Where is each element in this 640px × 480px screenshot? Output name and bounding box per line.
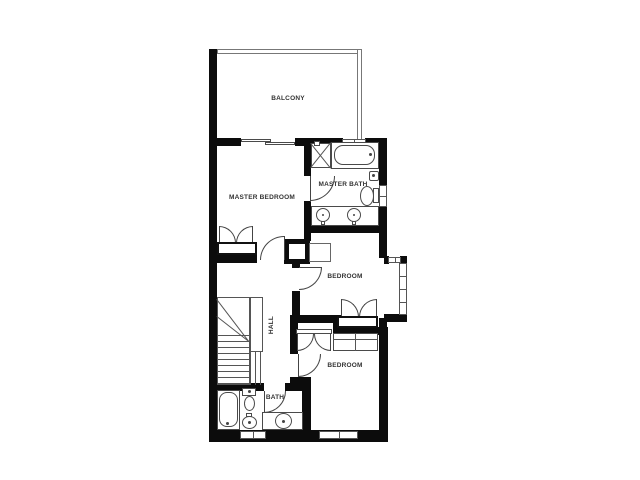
wall-masterbath-west-b bbox=[304, 201, 311, 241]
wall-east-bedroom-lower bbox=[379, 328, 388, 438]
master-bath-label: MASTER BATH bbox=[303, 181, 383, 188]
vanity-sink-right-drain bbox=[353, 214, 355, 216]
bedroom-upper-label: BEDROOM bbox=[305, 273, 385, 280]
bath-label: BATH bbox=[255, 394, 295, 401]
vanity-sink-left-faucet bbox=[321, 221, 325, 225]
upper-closet-swing-right bbox=[359, 299, 377, 317]
window-bath-south bbox=[240, 431, 266, 439]
upper-closet-box bbox=[337, 316, 378, 328]
vanity-bath-drain bbox=[282, 420, 285, 423]
master-bedroom-label: MASTER BEDROOM bbox=[212, 194, 312, 201]
bidet-drain bbox=[248, 421, 251, 424]
wall-bath-north-right bbox=[285, 383, 302, 391]
bedroom-lower-label: BEDROOM bbox=[305, 362, 385, 369]
wall-masterbath-south bbox=[304, 225, 387, 233]
window-masterbath-east bbox=[379, 185, 387, 207]
wall-hall-east-b bbox=[292, 291, 300, 315]
masterbath-door-swing bbox=[310, 176, 335, 201]
wall-masterbed-south bbox=[209, 255, 257, 263]
toilet-bath-flush-button bbox=[248, 390, 251, 393]
balcony-label: BALCONY bbox=[244, 95, 332, 102]
bathtub-vertical-faucet bbox=[226, 422, 229, 425]
toilet-paper-holder-dot bbox=[372, 174, 375, 177]
stairs-treads bbox=[218, 335, 249, 385]
masterbed-door-swing bbox=[260, 236, 284, 260]
master-closet-swing-left bbox=[219, 226, 236, 243]
shower-mixer-icon bbox=[314, 141, 320, 146]
master-closet-swing-right bbox=[236, 226, 253, 243]
bay-bottom-bar bbox=[384, 314, 407, 322]
toilet-masterbath-tank bbox=[373, 188, 379, 203]
floor-plan: BALCONY MASTER BEDROOM MASTER BATH BEDRO… bbox=[0, 0, 640, 480]
balcony-rail-right bbox=[357, 49, 362, 142]
window-bedroom-south bbox=[319, 431, 358, 439]
wardrobe-divider bbox=[355, 333, 356, 351]
wall-east-top bbox=[379, 138, 387, 186]
vanity-sink-left-drain bbox=[322, 214, 324, 216]
lower-closet-swing-right bbox=[314, 334, 331, 351]
wall-north-left bbox=[217, 138, 241, 146]
window-bay-east bbox=[399, 263, 407, 315]
wall-south-outer bbox=[209, 430, 388, 442]
stairs-railing bbox=[250, 297, 263, 352]
wall-bath-east bbox=[302, 391, 311, 432]
toilet-bath-bowl bbox=[244, 396, 255, 411]
lower-closet-swing-left bbox=[297, 334, 314, 351]
bathtub-drain-icon bbox=[369, 153, 372, 156]
stairs-lower-treads bbox=[250, 352, 263, 385]
balcony-rail-top bbox=[217, 49, 358, 54]
cabinet bbox=[309, 243, 331, 262]
upper-closet-swing-left bbox=[341, 299, 359, 317]
shaft-interior bbox=[289, 244, 305, 259]
master-closet-box bbox=[217, 242, 257, 255]
hall-label: HALL bbox=[268, 305, 278, 345]
vanity-sink-right-faucet bbox=[352, 221, 356, 225]
wall-east-bedroom-upper bbox=[379, 233, 387, 258]
sliding-door-panel-2 bbox=[265, 142, 295, 145]
masterbed-door-leaf bbox=[284, 236, 285, 260]
toilet-masterbath-bowl bbox=[360, 186, 374, 206]
